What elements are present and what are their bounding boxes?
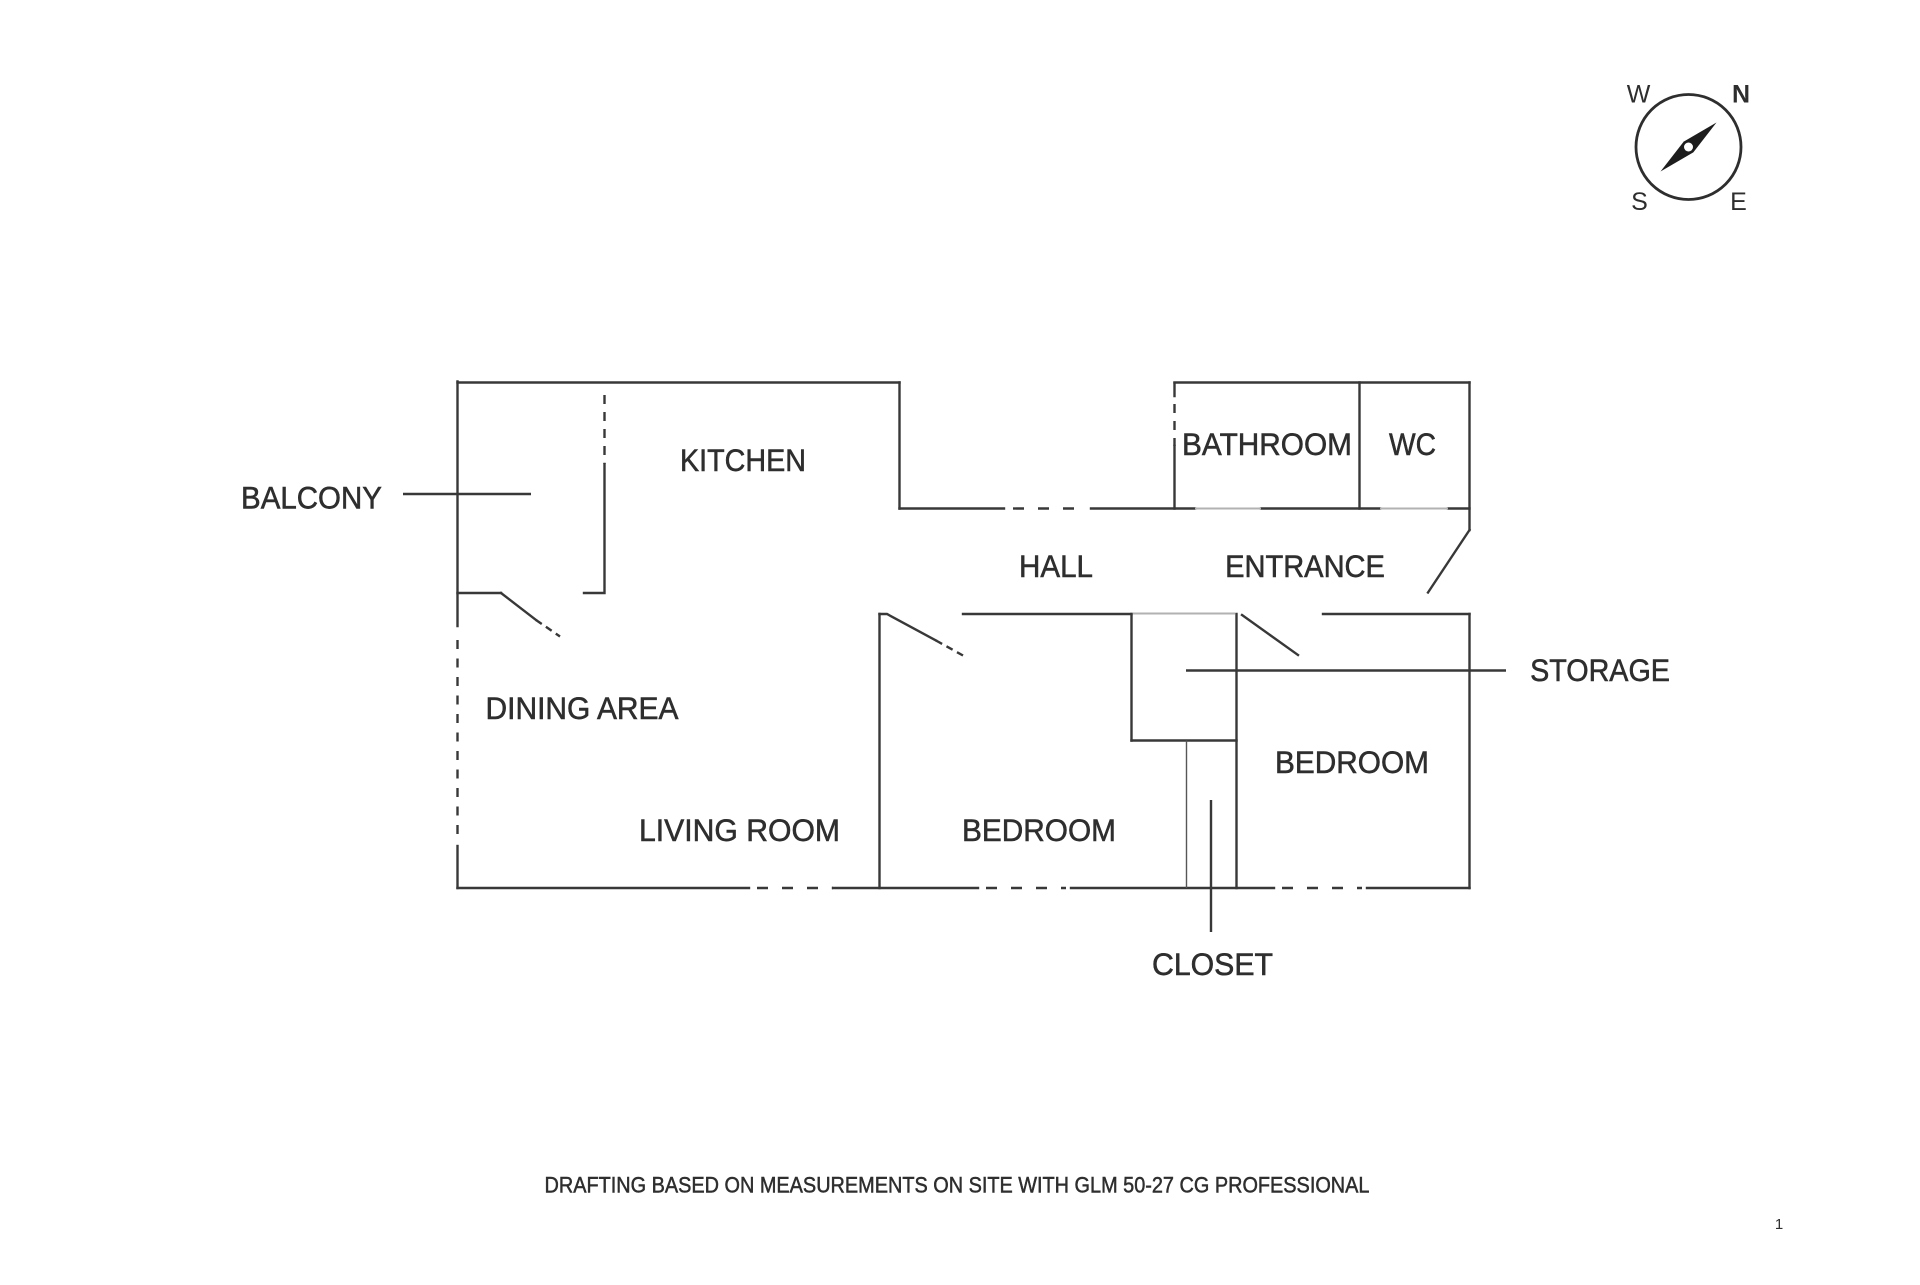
svg-text:BATHROOM: BATHROOM xyxy=(1182,427,1352,462)
svg-text:BEDROOM: BEDROOM xyxy=(962,813,1116,848)
svg-text:W: W xyxy=(1627,81,1651,109)
svg-text:BALCONY: BALCONY xyxy=(241,481,382,516)
svg-text:N: N xyxy=(1732,81,1750,109)
svg-text:DRAFTING BASED ON MEASUREMENTS: DRAFTING BASED ON MEASUREMENTS ON SITE W… xyxy=(545,1173,1370,1197)
svg-text:KITCHEN: KITCHEN xyxy=(680,444,806,478)
svg-text:1: 1 xyxy=(1775,1216,1783,1233)
svg-text:BEDROOM: BEDROOM xyxy=(1275,745,1429,780)
svg-text:DINING AREA: DINING AREA xyxy=(486,690,679,726)
svg-text:E: E xyxy=(1730,188,1747,216)
svg-text:CLOSET: CLOSET xyxy=(1152,946,1273,982)
svg-text:LIVING ROOM: LIVING ROOM xyxy=(639,812,840,848)
svg-text:WC: WC xyxy=(1389,428,1436,463)
svg-text:HALL: HALL xyxy=(1019,549,1093,584)
svg-text:ENTRANCE: ENTRANCE xyxy=(1225,550,1385,584)
svg-text:S: S xyxy=(1631,188,1648,216)
svg-text:STORAGE: STORAGE xyxy=(1530,654,1670,688)
